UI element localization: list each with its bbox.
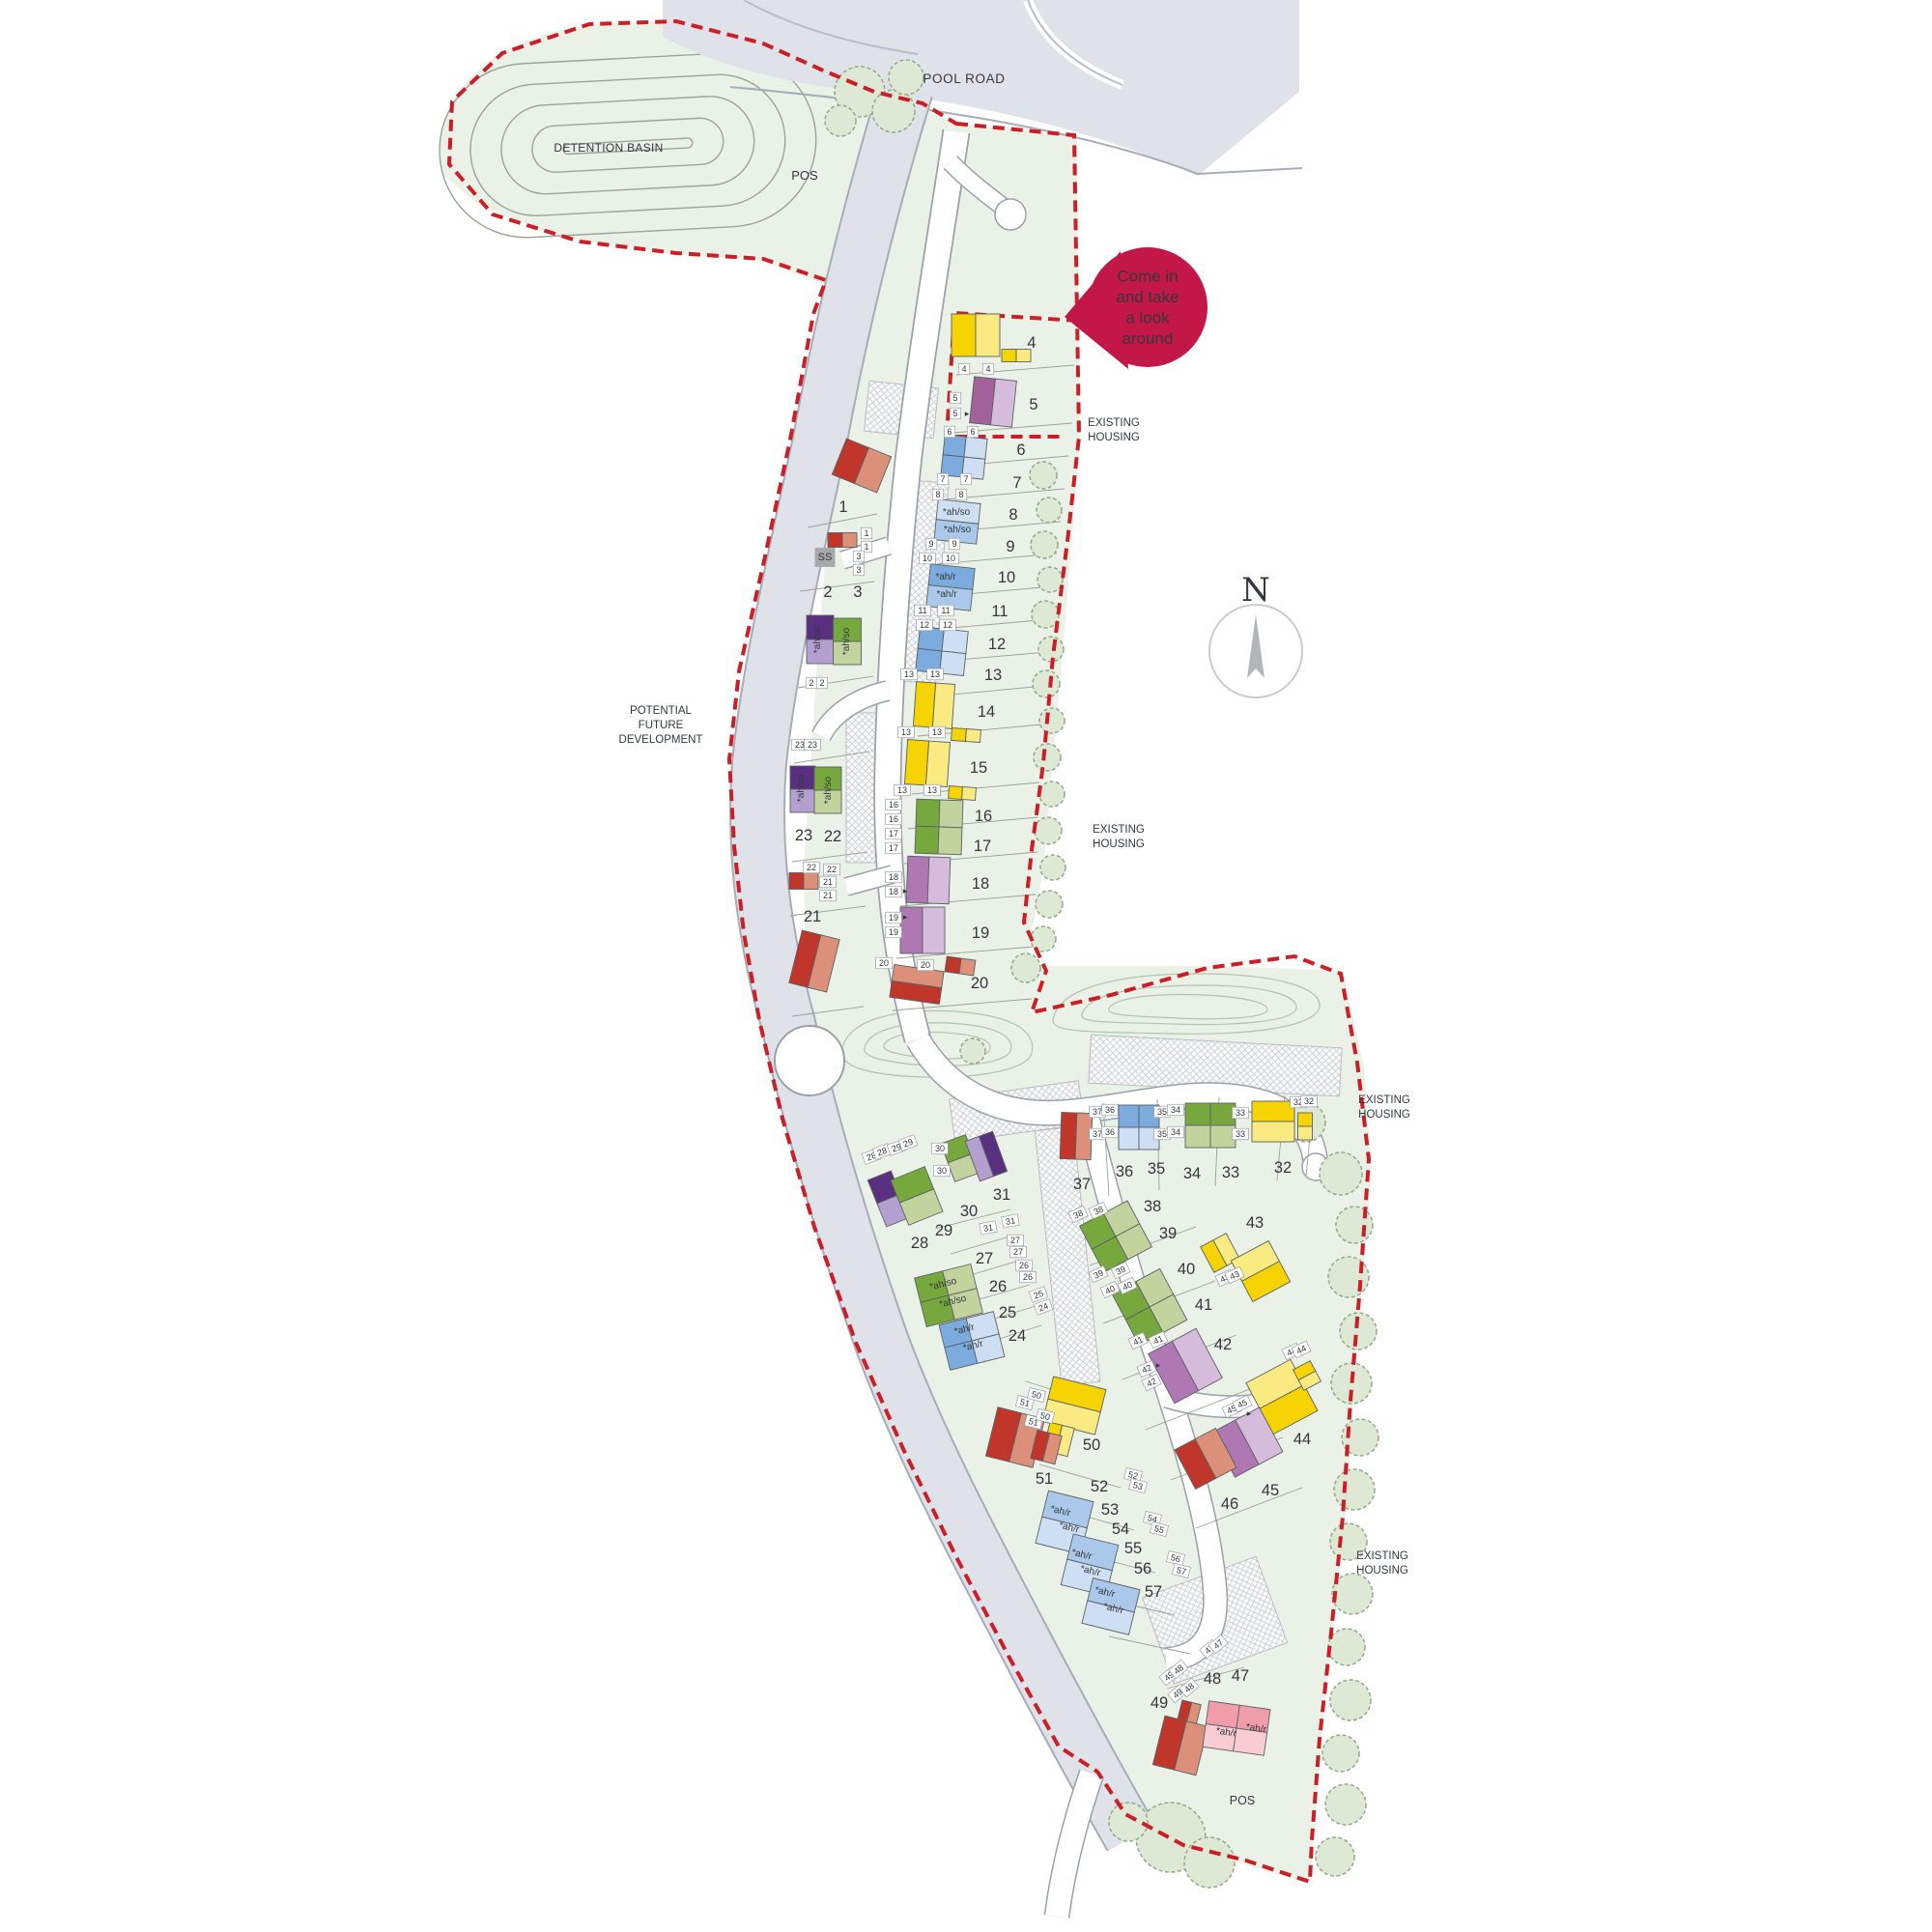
plot-number: 21 xyxy=(804,908,821,925)
plot-number: 4 xyxy=(1027,334,1036,352)
unit-number-tag: 21 xyxy=(820,876,837,888)
svg-text:19: 19 xyxy=(889,927,898,937)
house-block xyxy=(952,314,1000,356)
plot-number: 43 xyxy=(1246,1214,1264,1232)
svg-text:13: 13 xyxy=(930,669,940,679)
map-label: ▸ xyxy=(1247,1408,1252,1418)
svg-text:3: 3 xyxy=(856,565,861,575)
plot-number: 34 xyxy=(1183,1165,1201,1182)
map-label: *ah/r xyxy=(936,589,957,600)
svg-text:6: 6 xyxy=(970,427,975,437)
tree-icon xyxy=(1011,953,1040,982)
svg-text:3: 3 xyxy=(856,552,861,561)
plot-number: 27 xyxy=(976,1250,993,1267)
unit-number-tag: 5 xyxy=(950,408,960,419)
badge-circle xyxy=(1088,247,1207,367)
badge-text-line: Come in xyxy=(1117,267,1178,285)
svg-text:23: 23 xyxy=(795,740,805,750)
unit-number-tag: 16 xyxy=(886,799,902,810)
svg-text:30: 30 xyxy=(935,1144,945,1153)
unit-number-tag: 12 xyxy=(917,619,933,631)
unit-number-tag: 27 xyxy=(1008,1235,1024,1246)
unit-number-tag: 33 xyxy=(1233,1107,1249,1119)
map-label: *ah/so xyxy=(796,774,807,802)
house-block xyxy=(1119,1105,1159,1150)
house-block xyxy=(904,740,950,787)
unit-number-tag: 9 xyxy=(949,538,959,550)
map-label: DETENTION BASIN xyxy=(554,141,663,155)
plot-number: 30 xyxy=(960,1203,978,1220)
tree-icon xyxy=(1040,855,1065,880)
unit-number-tag: 34 xyxy=(1168,1126,1184,1138)
house-block xyxy=(1185,1103,1236,1148)
plot-number: 49 xyxy=(1151,1694,1168,1712)
plot-number: 31 xyxy=(993,1186,1010,1204)
house-block xyxy=(952,727,981,742)
unit-number-tag: 31 xyxy=(1002,1214,1020,1228)
tree-icon xyxy=(889,60,923,95)
tree-icon xyxy=(1035,817,1062,844)
svg-text:36: 36 xyxy=(1105,1127,1115,1137)
unit-number-tag: 17 xyxy=(886,828,902,839)
house-block xyxy=(970,377,1017,427)
svg-text:5: 5 xyxy=(952,393,957,403)
svg-text:11: 11 xyxy=(918,606,926,615)
svg-text:22: 22 xyxy=(807,863,816,872)
plot-number: 39 xyxy=(1159,1225,1177,1242)
unit-number-tag: 13 xyxy=(901,668,918,680)
tree-icon xyxy=(1184,1837,1235,1888)
svg-text:4: 4 xyxy=(985,364,990,374)
unit-number-tag: 1 xyxy=(861,527,871,539)
svg-text:23: 23 xyxy=(808,740,817,750)
plot-number: 47 xyxy=(1232,1667,1249,1685)
svg-text:9: 9 xyxy=(928,539,933,549)
unit-number-tag: 9 xyxy=(925,538,936,550)
plot-number: 33 xyxy=(1222,1164,1239,1181)
map-label: ▸ xyxy=(1156,1360,1161,1370)
unit-number-tag: 31 xyxy=(980,1221,998,1235)
map-label: *ah/so xyxy=(841,627,852,655)
map-label: POTENTIAL xyxy=(630,705,693,717)
svg-text:37: 37 xyxy=(1093,1107,1102,1117)
svg-text:31: 31 xyxy=(982,1222,994,1234)
house-block xyxy=(906,856,951,904)
svg-text:13: 13 xyxy=(904,669,914,679)
unit-number-tag: 6 xyxy=(944,426,954,438)
unit-number-tag: 20 xyxy=(876,957,893,969)
svg-text:5: 5 xyxy=(952,409,957,418)
svg-text:16: 16 xyxy=(889,814,898,824)
svg-text:12: 12 xyxy=(920,620,929,630)
unit-number-tag: 33 xyxy=(1233,1128,1249,1140)
svg-text:13: 13 xyxy=(897,785,907,795)
unit-number-tag: 13 xyxy=(927,668,944,680)
svg-text:21: 21 xyxy=(823,877,833,887)
unit-number-tag: 26 xyxy=(1020,1271,1037,1283)
unit-number-tag: 7 xyxy=(937,473,948,485)
plot-number: 1 xyxy=(838,498,847,516)
svg-text:2: 2 xyxy=(809,678,813,688)
plot-number: 5 xyxy=(1029,396,1037,413)
svg-text:13: 13 xyxy=(932,727,942,737)
plot-number: 2 xyxy=(823,583,832,601)
map-label: POOL ROAD xyxy=(923,71,1005,86)
map-label: *ah/so xyxy=(944,525,972,535)
svg-text:35: 35 xyxy=(1157,1129,1167,1139)
plot-number: 19 xyxy=(972,924,989,942)
tree-icon xyxy=(1036,891,1063,918)
badge-text-line: around xyxy=(1122,329,1174,348)
unit-number-tag: 11 xyxy=(938,605,954,616)
svg-text:18: 18 xyxy=(889,872,898,882)
unit-number-tag: 19 xyxy=(886,912,902,923)
tree-icon xyxy=(1037,567,1063,592)
house-block xyxy=(1298,1113,1313,1140)
unit-number-tag: 16 xyxy=(886,813,902,825)
map-label: *ah/so xyxy=(943,507,971,518)
unit-number-tag: 11 xyxy=(915,605,931,616)
tree-icon xyxy=(1328,1629,1365,1665)
svg-text:10: 10 xyxy=(946,554,955,563)
unit-number-tag: 30 xyxy=(934,1165,951,1177)
unit-number-tag: 13 xyxy=(895,784,911,796)
svg-text:10: 10 xyxy=(923,554,932,563)
house-block xyxy=(890,965,944,1005)
svg-text:36: 36 xyxy=(1105,1105,1115,1115)
svg-text:16: 16 xyxy=(889,800,898,810)
unit-number-tag: 21 xyxy=(820,890,837,901)
house-block xyxy=(1060,1112,1093,1159)
map-label: *ah/r xyxy=(935,572,956,582)
svg-text:22: 22 xyxy=(827,865,837,874)
tree-icon xyxy=(1032,601,1059,628)
plot-number: 26 xyxy=(989,1278,1007,1295)
roundabout xyxy=(775,1026,844,1095)
unit-number-tag: 13 xyxy=(898,726,915,738)
plot-number: 48 xyxy=(1204,1670,1221,1688)
map-label: FUTURE xyxy=(639,720,684,731)
plot-number: 46 xyxy=(1221,1495,1238,1513)
plot-number: 13 xyxy=(984,667,1002,684)
badge-text-line: and take xyxy=(1116,288,1179,306)
map-label: HOUSING xyxy=(1088,432,1140,443)
tree-icon xyxy=(1031,531,1058,558)
turning-head xyxy=(995,199,1026,230)
tree-icon xyxy=(872,90,915,132)
house-block xyxy=(913,682,954,729)
badge-text-line: a look xyxy=(1125,308,1170,327)
svg-text:13: 13 xyxy=(901,727,911,737)
svg-text:33: 33 xyxy=(1236,1108,1245,1118)
unit-number-tag: 26 xyxy=(1016,1260,1033,1271)
unit-number-tag: 32 xyxy=(1301,1095,1318,1107)
tree-icon xyxy=(1039,781,1065,807)
house-block xyxy=(789,873,818,890)
unit-number-tag: SS xyxy=(815,549,835,567)
plot-number: 3 xyxy=(853,583,862,601)
svg-text:27: 27 xyxy=(1013,1247,1023,1257)
svg-text:1: 1 xyxy=(864,528,868,538)
house-block xyxy=(949,786,977,801)
compass-needle xyxy=(1247,614,1264,678)
map-label: HOUSING xyxy=(1358,1109,1410,1121)
tree-icon xyxy=(1325,1784,1366,1825)
plot-number: 29 xyxy=(935,1222,952,1239)
map-label: EXISTING xyxy=(1358,1094,1410,1106)
svg-text:1: 1 xyxy=(864,542,868,552)
svg-text:7: 7 xyxy=(963,474,968,484)
house-block xyxy=(1252,1101,1294,1142)
unit-number-tag: 10 xyxy=(920,553,936,564)
plot-number: 54 xyxy=(1112,1520,1129,1538)
unit-number-tag: 34 xyxy=(1168,1104,1184,1116)
unit-number-tag: 27 xyxy=(1010,1246,1027,1258)
tree-icon xyxy=(1334,1469,1375,1510)
unit-number-tag: 3 xyxy=(853,551,864,562)
plot-number: 22 xyxy=(824,828,841,845)
tree-icon xyxy=(825,105,856,136)
svg-text:31: 31 xyxy=(1005,1215,1016,1227)
svg-text:8: 8 xyxy=(935,490,940,499)
house-block xyxy=(828,533,857,548)
svg-text:11: 11 xyxy=(941,606,950,615)
plot-number: 57 xyxy=(1145,1583,1162,1601)
svg-text:27: 27 xyxy=(1010,1236,1020,1245)
plot-number: 41 xyxy=(1195,1296,1212,1314)
svg-text:34: 34 xyxy=(1171,1105,1180,1115)
svg-text:18: 18 xyxy=(889,887,898,896)
unit-number-tag: 18 xyxy=(886,886,902,897)
map-label: *ah/so xyxy=(823,776,834,804)
svg-text:34: 34 xyxy=(1171,1127,1180,1137)
compass-north-icon: N xyxy=(1209,571,1302,697)
svg-text:12: 12 xyxy=(943,620,952,630)
plot-number: 55 xyxy=(1124,1540,1142,1557)
unit-number-tag: 36 xyxy=(1102,1126,1119,1138)
map-label: ▸ xyxy=(965,409,970,418)
unit-number-tag: 13 xyxy=(924,784,941,796)
tree-icon xyxy=(1322,1735,1359,1772)
unit-number-tag: 2 xyxy=(816,677,827,689)
plot-number: 8 xyxy=(1009,506,1017,524)
plot-number: 12 xyxy=(988,636,1006,653)
svg-text:13: 13 xyxy=(927,785,937,795)
unit-number-tag: 20 xyxy=(918,959,934,971)
unit-number-tag: 19 xyxy=(886,926,902,938)
site-plan-map: 4455667788991010111112121313131313131616… xyxy=(0,0,1932,1932)
tree-icon xyxy=(1336,1207,1373,1243)
map-label: *ah/so xyxy=(812,625,823,653)
svg-text:33: 33 xyxy=(1236,1129,1245,1139)
unit-number-tag: 4 xyxy=(958,363,969,375)
svg-text:17: 17 xyxy=(889,843,898,853)
come-in-badge[interactable]: Come inand takea lookaround xyxy=(1065,247,1207,369)
plot-number: 32 xyxy=(1274,1159,1292,1177)
map-label: ▸ xyxy=(903,912,908,922)
unit-number-tag: 5 xyxy=(950,392,960,404)
svg-text:SS: SS xyxy=(818,552,833,563)
unit-number-tag: 2 xyxy=(806,677,816,689)
map-label: EXISTING xyxy=(1088,417,1140,429)
plot-number: 6 xyxy=(1016,441,1025,459)
tree-icon xyxy=(1037,497,1062,523)
svg-text:21: 21 xyxy=(823,891,833,900)
unit-number-tag: 22 xyxy=(804,862,820,873)
plot-number: 52 xyxy=(1091,1478,1108,1495)
plot-number: 23 xyxy=(795,827,812,844)
plot-number: 50 xyxy=(1083,1436,1100,1454)
plot-number: 44 xyxy=(1293,1431,1311,1448)
svg-text:8: 8 xyxy=(958,490,963,499)
map-label: POS xyxy=(791,168,818,183)
plot-number: 36 xyxy=(1116,1163,1133,1180)
plot-number: 16 xyxy=(975,808,992,825)
plot-number: 17 xyxy=(974,838,991,855)
tree-icon xyxy=(1320,1152,1362,1195)
svg-text:2: 2 xyxy=(819,678,824,688)
plot-number: 51 xyxy=(1036,1470,1053,1488)
unit-number-tag: 3 xyxy=(853,564,864,576)
tree-icon xyxy=(1330,1680,1371,1720)
unit-number-tag: 6 xyxy=(967,426,978,438)
map-label: POS xyxy=(1230,1794,1255,1807)
svg-text:4: 4 xyxy=(961,364,966,374)
unit-number-tag: 17 xyxy=(886,842,902,854)
plot-number: 40 xyxy=(1178,1261,1195,1278)
unit-number-tag: 18 xyxy=(886,871,902,883)
svg-text:26: 26 xyxy=(1023,1272,1033,1282)
unit-number-tag: 4 xyxy=(982,363,993,375)
unit-number-tag: 12 xyxy=(940,619,956,631)
tree-icon xyxy=(1034,744,1061,771)
house-block xyxy=(934,499,980,544)
tree-icon xyxy=(1039,708,1065,733)
plot-number: 10 xyxy=(998,569,1015,586)
unit-number-tag: 8 xyxy=(932,489,943,500)
unit-number-tag: 13 xyxy=(929,726,946,738)
svg-text:6: 6 xyxy=(947,427,952,437)
plot-number: 7 xyxy=(1012,474,1021,492)
house-block xyxy=(941,435,987,479)
unit-number-tag: 8 xyxy=(955,489,966,500)
plot-number: 42 xyxy=(1214,1336,1232,1353)
house-block xyxy=(926,564,975,611)
tree-icon xyxy=(1316,1837,1354,1876)
svg-text:20: 20 xyxy=(921,960,930,970)
plot-number: 11 xyxy=(991,603,1008,620)
unit-number-tag: 10 xyxy=(943,553,959,564)
tree-icon xyxy=(1033,670,1060,697)
plot-number: 37 xyxy=(1073,1176,1091,1193)
map-label: ▸ xyxy=(903,886,908,895)
unit-number-tag: 36 xyxy=(1102,1104,1119,1116)
plot-number: 14 xyxy=(978,703,995,721)
plot-number: 45 xyxy=(1262,1482,1279,1499)
unit-number-tag: 7 xyxy=(960,473,971,485)
plot-number: 15 xyxy=(970,759,987,777)
svg-text:32: 32 xyxy=(1304,1096,1314,1106)
unit-number-tag: 30 xyxy=(932,1143,949,1154)
plot-number: 18 xyxy=(972,875,989,893)
plot-number: 9 xyxy=(1006,538,1014,555)
plot-number: 28 xyxy=(911,1235,928,1252)
map-label: EXISTING xyxy=(1356,1550,1408,1562)
svg-text:30: 30 xyxy=(937,1166,947,1176)
map-label: DEVELOPMENT xyxy=(619,734,703,746)
svg-text:26: 26 xyxy=(1019,1261,1029,1270)
house-block xyxy=(916,627,969,676)
map-label: HOUSING xyxy=(1356,1565,1408,1577)
tree-icon xyxy=(1030,462,1057,489)
unit-number-tag: 22 xyxy=(824,864,840,875)
svg-text:19: 19 xyxy=(889,913,898,923)
tree-icon xyxy=(1109,1803,1148,1841)
svg-text:37: 37 xyxy=(1093,1129,1102,1139)
svg-text:17: 17 xyxy=(889,829,898,838)
map-label: HOUSING xyxy=(1093,838,1145,850)
plot-number: 24 xyxy=(1009,1327,1026,1345)
unit-number-tag: 23 xyxy=(805,739,821,751)
plot-number: 53 xyxy=(1101,1501,1119,1519)
tree-icon xyxy=(960,1038,985,1064)
plot-number: 35 xyxy=(1148,1160,1165,1178)
plot-number: 20 xyxy=(971,975,988,992)
svg-text:7: 7 xyxy=(940,474,945,484)
plot-number: 25 xyxy=(999,1304,1016,1321)
plot-number: 56 xyxy=(1134,1560,1151,1577)
house-block xyxy=(915,799,963,855)
svg-text:9: 9 xyxy=(952,539,956,549)
plot-number: 38 xyxy=(1144,1198,1161,1215)
svg-text:20: 20 xyxy=(879,958,889,968)
map-label: EXISTING xyxy=(1093,824,1145,836)
svg-text:35: 35 xyxy=(1157,1107,1167,1117)
